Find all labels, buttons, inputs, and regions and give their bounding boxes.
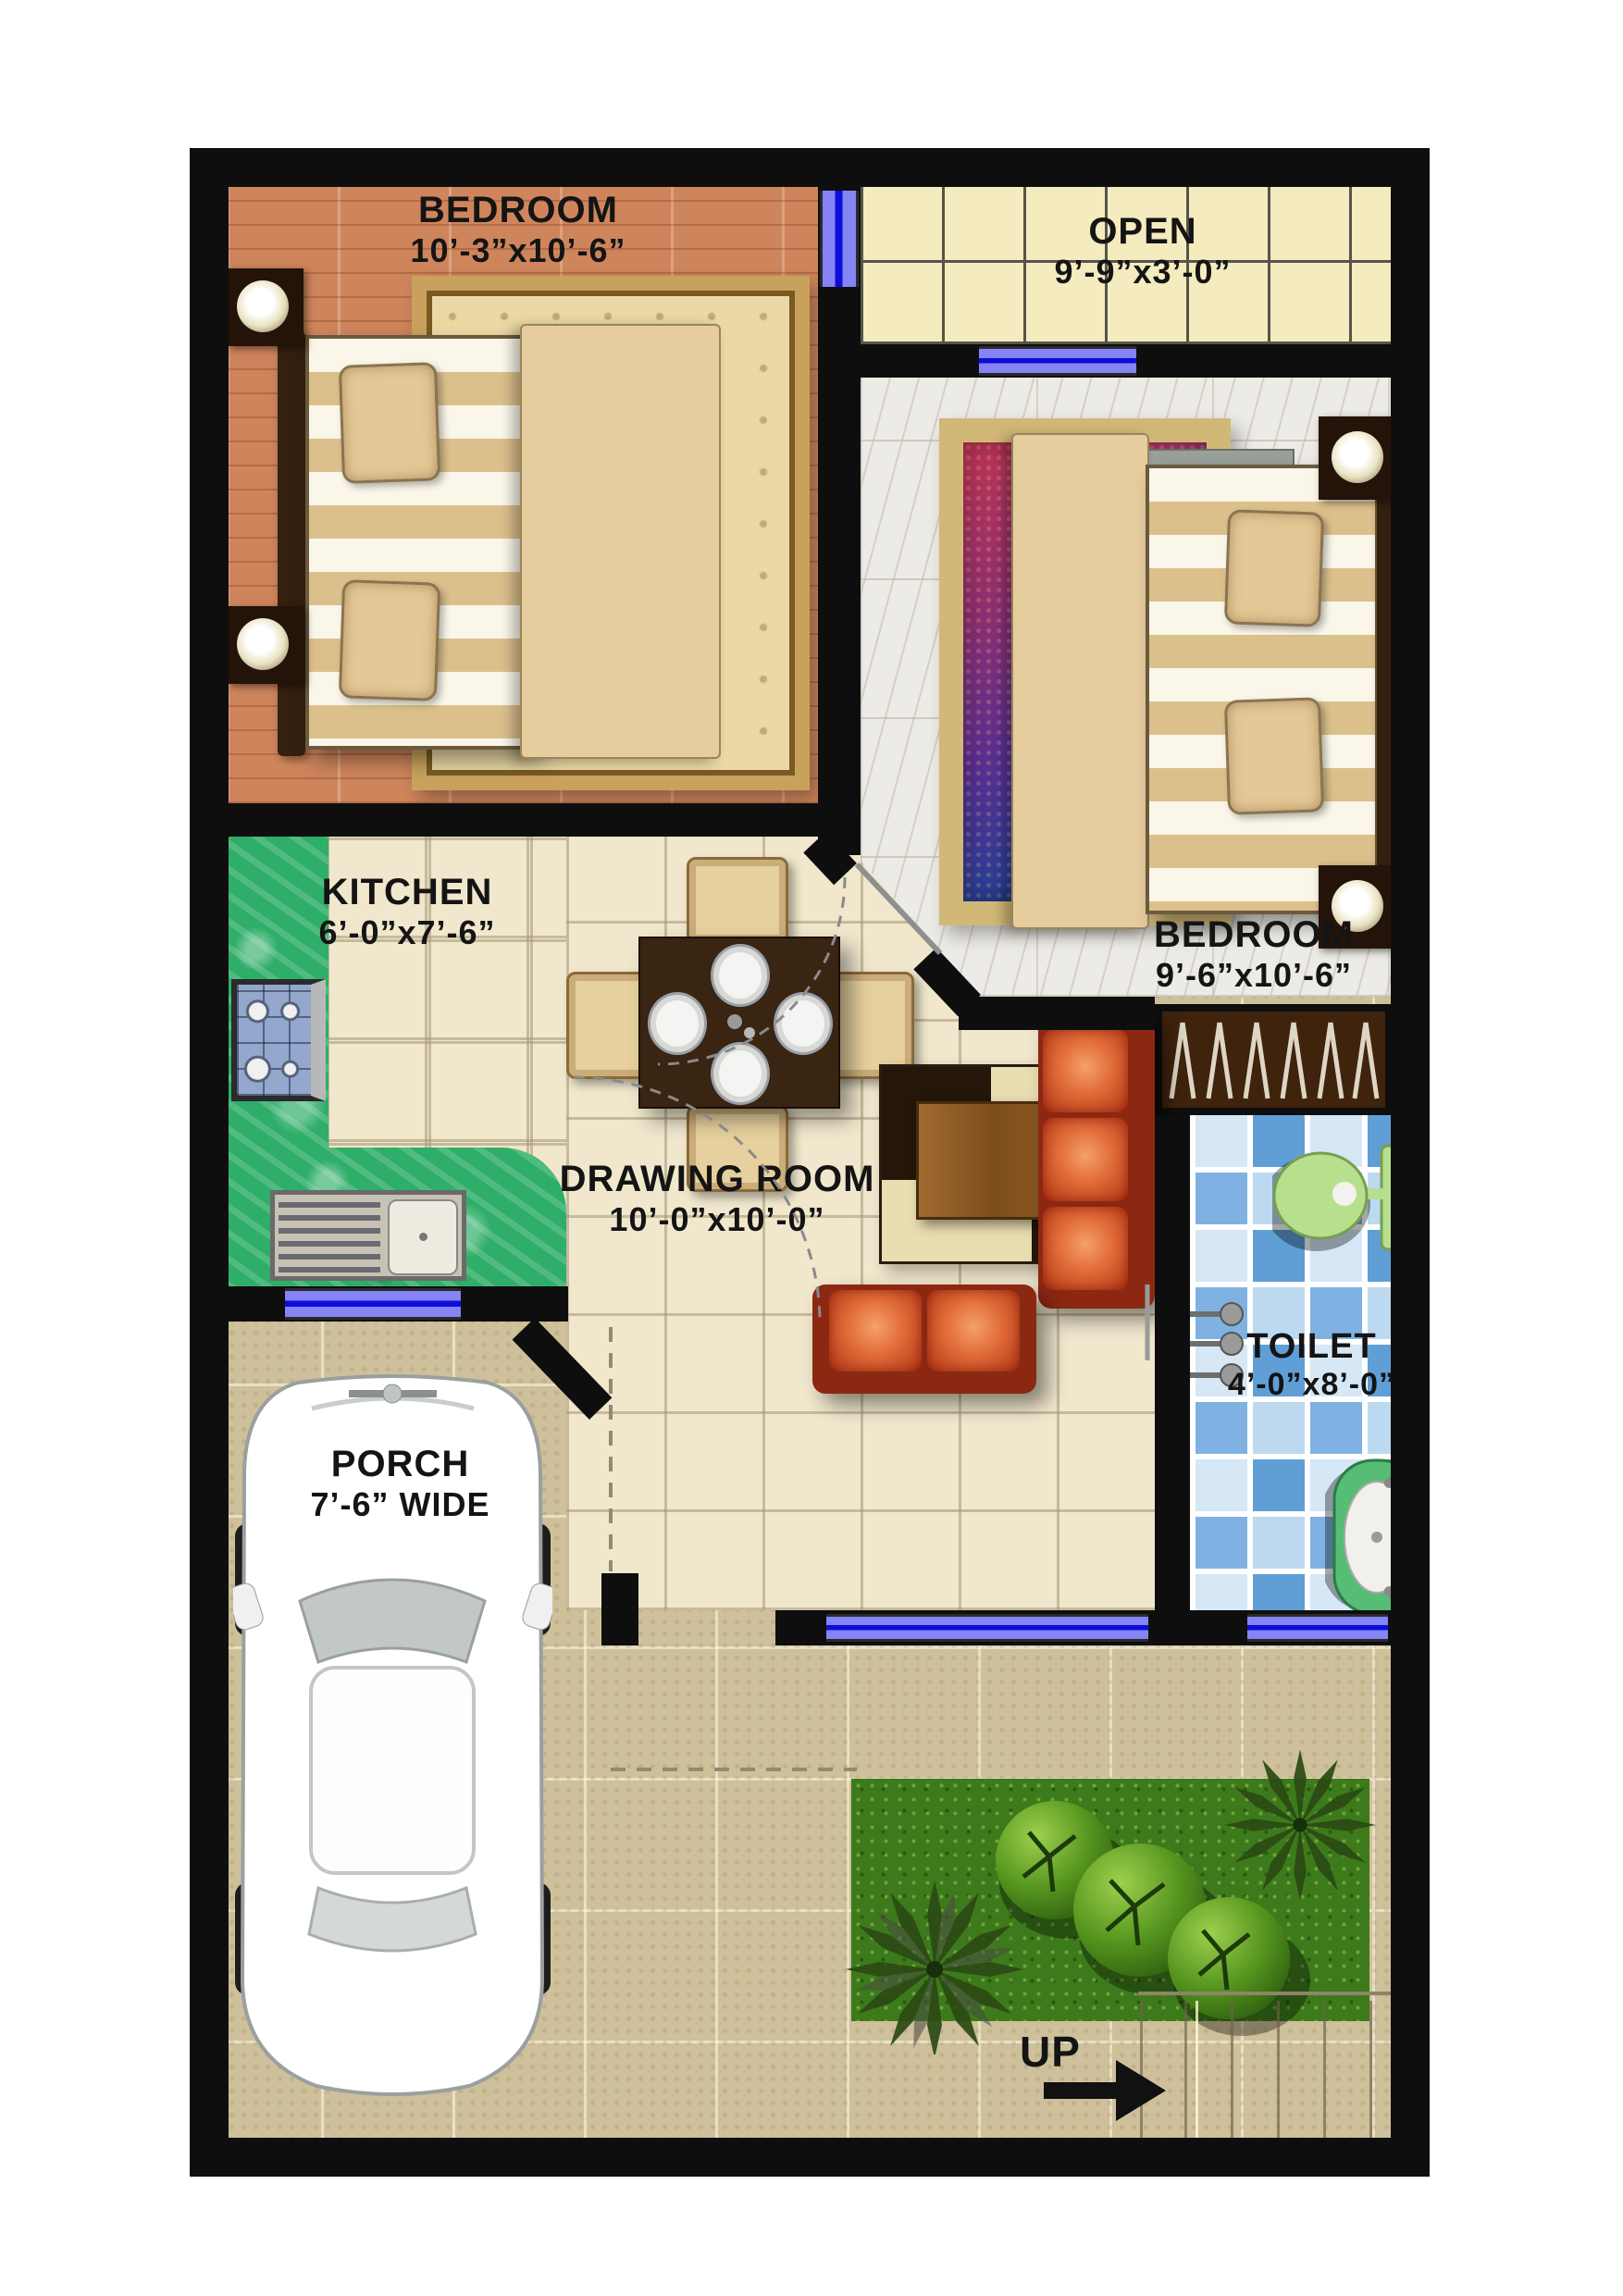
sofa-cushion bbox=[829, 1290, 922, 1371]
floor-plan: BEDROOM 10’-3”x10’-6” OPEN 9’-9”x3’-0” B… bbox=[0, 0, 1623, 2296]
sink-basin bbox=[388, 1199, 458, 1275]
bedroom1-label: BEDROOM 10’-3”x10’-6” bbox=[352, 190, 685, 269]
sofa-cushion bbox=[927, 1290, 1020, 1371]
hangers-icon bbox=[1162, 1011, 1385, 1108]
porch-label: PORCH 7’-6” WIDE bbox=[259, 1444, 541, 1523]
room-size: 9’-6”x10’-6” bbox=[1101, 956, 1406, 994]
up-arrow-icon bbox=[1044, 2082, 1118, 2099]
outer-wall-top bbox=[190, 148, 1430, 187]
entry-steps bbox=[1138, 1992, 1391, 2141]
bedroom1-headboard bbox=[278, 331, 305, 756]
sofa-cushion bbox=[1043, 1029, 1128, 1112]
bedroom2-pillow bbox=[1224, 509, 1324, 627]
room-size: 7’-6” WIDE bbox=[259, 1485, 541, 1523]
bedroom1-pillow bbox=[339, 579, 440, 701]
bedroom1-blanket bbox=[520, 324, 721, 759]
sofa-backrest bbox=[824, 1371, 1025, 1394]
window bbox=[820, 191, 859, 287]
outer-wall-right bbox=[1391, 148, 1430, 2177]
gas-stove bbox=[231, 979, 326, 1101]
room-size: 9’-9”x3’-0” bbox=[972, 253, 1314, 291]
room-name: TOILET bbox=[1203, 1327, 1420, 1367]
room-name: BEDROOM bbox=[1101, 914, 1406, 956]
window bbox=[826, 1614, 1148, 1642]
room-name: OPEN bbox=[972, 211, 1314, 253]
wall-toilet-left bbox=[1155, 1115, 1190, 1610]
window bbox=[1247, 1614, 1388, 1642]
room-name: PORCH bbox=[259, 1444, 541, 1485]
sofa-two-seater bbox=[812, 1285, 1036, 1394]
bedroom1-nightstand bbox=[228, 268, 304, 346]
dining-chair bbox=[687, 857, 788, 944]
bedroom1-nightstand bbox=[228, 606, 304, 684]
room-name: DRAWING ROOM bbox=[504, 1159, 930, 1200]
room-size: 4’-0”x8’-0” bbox=[1203, 1367, 1420, 1403]
bedroom2-label: BEDROOM 9’-6”x10’-6” bbox=[1101, 914, 1406, 994]
plate-icon bbox=[711, 944, 770, 1007]
room-size: 10’-0”x10’-0” bbox=[504, 1200, 930, 1238]
sink-drainboard bbox=[279, 1198, 380, 1272]
window bbox=[285, 1288, 461, 1320]
outer-wall-bottom bbox=[190, 2138, 1430, 2177]
wall-bedroom2-bottom bbox=[959, 997, 1155, 1030]
sofa-three-seater bbox=[1038, 1011, 1155, 1309]
palm-plant-icon bbox=[1224, 1749, 1375, 1900]
table-decor bbox=[727, 1014, 742, 1029]
bedroom2-pillow bbox=[1224, 697, 1324, 815]
bedside-lamp-icon bbox=[237, 618, 289, 670]
dining-table bbox=[638, 937, 840, 1109]
up-label: UP bbox=[999, 2029, 1101, 2077]
plate-icon bbox=[711, 1042, 770, 1105]
drawing-room-label: DRAWING ROOM 10’-0”x10’-0” bbox=[504, 1159, 930, 1238]
room-name: BEDROOM bbox=[352, 190, 685, 231]
sofa-cushion bbox=[1043, 1118, 1128, 1201]
room-size: 6’-0”x7’-6” bbox=[250, 913, 564, 951]
table-decor bbox=[744, 1027, 755, 1038]
bedside-lamp-icon bbox=[237, 280, 289, 332]
wardrobe bbox=[1155, 1004, 1393, 1115]
toilet-label: TOILET 4’-0”x8’-0” bbox=[1203, 1327, 1420, 1403]
bedroom2-nightstand bbox=[1319, 416, 1393, 500]
room-name: KITCHEN bbox=[250, 872, 564, 913]
sofa-backrest bbox=[1131, 1022, 1155, 1297]
plate-icon bbox=[774, 992, 833, 1055]
bedside-lamp-icon bbox=[1332, 431, 1383, 483]
up-arrow-head-icon bbox=[1116, 2060, 1166, 2121]
bedroom2-blanket bbox=[1011, 433, 1149, 929]
palm-plant-icon bbox=[846, 1880, 1023, 2054]
plate-icon bbox=[648, 992, 707, 1055]
open-area-label: OPEN 9’-9”x3’-0” bbox=[972, 211, 1314, 291]
dining-chair bbox=[829, 972, 914, 1079]
wall-bedroom1-bottom bbox=[227, 803, 861, 837]
sofa-cushion bbox=[1043, 1207, 1128, 1290]
bedroom1-pillow bbox=[339, 362, 440, 484]
wall-entry-stub bbox=[601, 1573, 638, 1645]
sink-drain-dot bbox=[419, 1233, 427, 1241]
kitchen-sink bbox=[270, 1190, 466, 1281]
kitchen-label: KITCHEN 6’-0”x7’-6” bbox=[250, 872, 564, 951]
window bbox=[979, 346, 1136, 376]
outer-wall-left bbox=[190, 148, 229, 2177]
room-size: 10’-3”x10’-6” bbox=[352, 231, 685, 269]
